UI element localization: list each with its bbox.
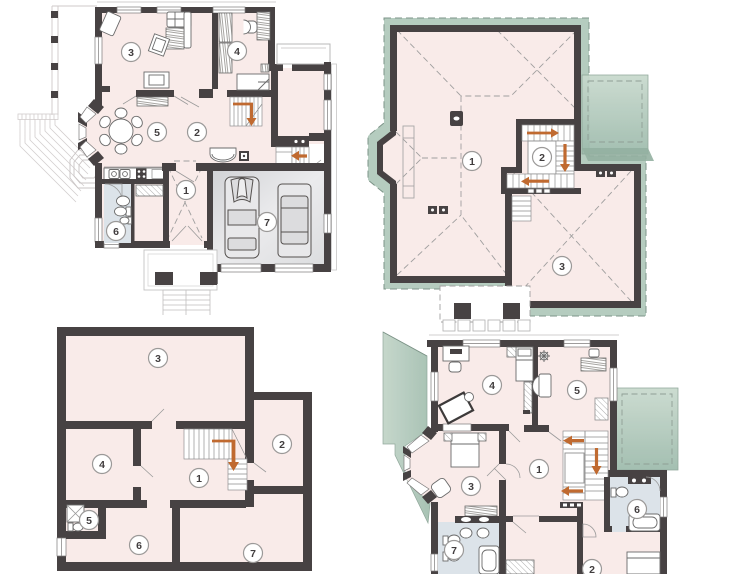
svg-text:7: 7	[451, 545, 457, 557]
svg-text:7: 7	[264, 217, 270, 229]
svg-text:3: 3	[559, 261, 565, 273]
svg-text:4: 4	[489, 380, 495, 392]
svg-text:3: 3	[468, 481, 474, 493]
svg-text:6: 6	[136, 540, 142, 552]
svg-text:2: 2	[194, 127, 200, 139]
svg-text:1: 1	[536, 464, 542, 476]
svg-text:7: 7	[250, 548, 256, 560]
svg-text:4: 4	[99, 459, 105, 471]
svg-text:2: 2	[539, 152, 545, 164]
svg-text:3: 3	[128, 47, 134, 59]
svg-text:6: 6	[634, 504, 640, 516]
svg-text:5: 5	[86, 515, 92, 527]
svg-text:1: 1	[196, 473, 202, 485]
svg-text:2: 2	[589, 564, 595, 574]
svg-text:4: 4	[234, 46, 240, 58]
svg-text:5: 5	[154, 127, 160, 139]
svg-text:1: 1	[469, 156, 475, 168]
svg-text:5: 5	[574, 385, 580, 397]
svg-text:2: 2	[279, 439, 285, 451]
svg-text:3: 3	[155, 353, 161, 365]
svg-text:1: 1	[183, 185, 189, 197]
svg-text:6: 6	[113, 226, 119, 238]
